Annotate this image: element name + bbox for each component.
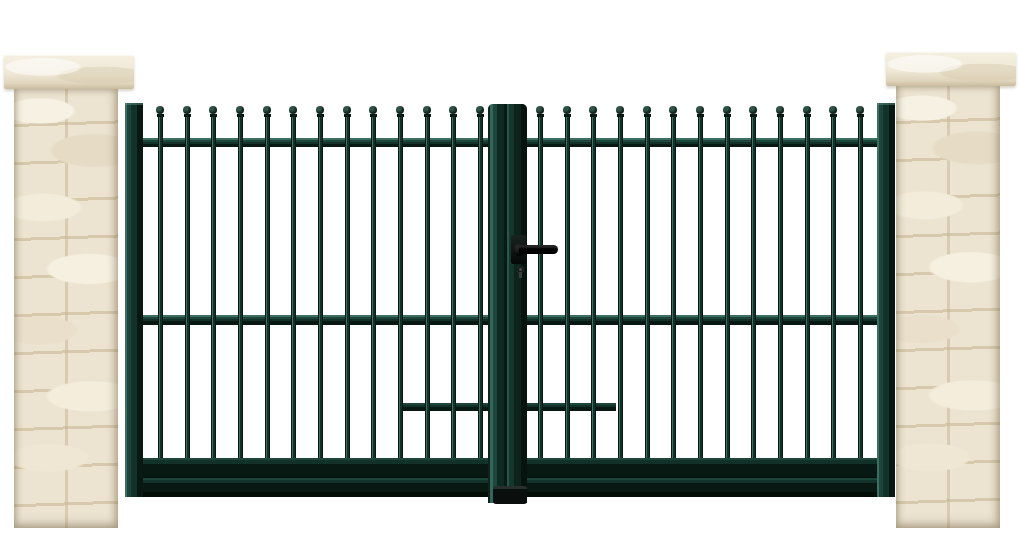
right-leaf-meeting-stile <box>507 104 527 503</box>
gate-bar-with-finial <box>696 106 704 458</box>
bar-stem <box>645 117 650 458</box>
gate-bar-with-finial <box>749 106 757 458</box>
ball-finial-icon <box>563 106 571 114</box>
ball-finial-icon <box>856 106 864 114</box>
bar-stem <box>698 117 703 458</box>
ground-stop-block <box>493 486 527 504</box>
bar-stem <box>618 117 623 458</box>
bar-stem <box>565 117 570 458</box>
gate-bar-with-finial <box>669 106 677 458</box>
left-leaf-meeting-stile <box>488 104 507 503</box>
ball-finial-icon <box>829 106 837 114</box>
bar-stem <box>831 117 836 458</box>
gate-bar-with-finial <box>829 106 837 458</box>
bar-stem <box>778 117 783 458</box>
gate-bar-with-finial <box>776 106 784 458</box>
lever-handle <box>519 245 558 254</box>
bar-stem <box>591 117 596 458</box>
gate-bar-with-finial <box>643 106 651 458</box>
gate-bar-with-finial <box>856 106 864 458</box>
keyhole-slot <box>519 272 522 278</box>
bar-stem <box>858 117 863 458</box>
gate-bar-with-finial <box>803 106 811 458</box>
ball-finial-icon <box>803 106 811 114</box>
bar-stem <box>751 117 756 458</box>
bar-stem <box>805 117 810 458</box>
ball-finial-icon <box>749 106 757 114</box>
bar-stem <box>725 117 730 458</box>
ball-finial-icon <box>536 106 544 114</box>
gate-bar-with-finial <box>536 106 544 458</box>
ball-finial-icon <box>589 106 597 114</box>
gate-bar-with-finial <box>723 106 731 458</box>
ball-finial-icon <box>776 106 784 114</box>
gate-product-photo <box>0 0 1020 548</box>
ball-finial-icon <box>723 106 731 114</box>
ball-finial-icon <box>616 106 624 114</box>
bar-stem <box>671 117 676 458</box>
ball-finial-icon <box>643 106 651 114</box>
ball-finial-icon <box>696 106 704 114</box>
ball-finial-icon <box>669 106 677 114</box>
gate-bar-with-finial <box>589 106 597 458</box>
gate-bar-with-finial <box>616 106 624 458</box>
bar-stem <box>538 117 543 458</box>
gate-bar-with-finial <box>563 106 571 458</box>
center-meeting-post <box>488 104 527 503</box>
